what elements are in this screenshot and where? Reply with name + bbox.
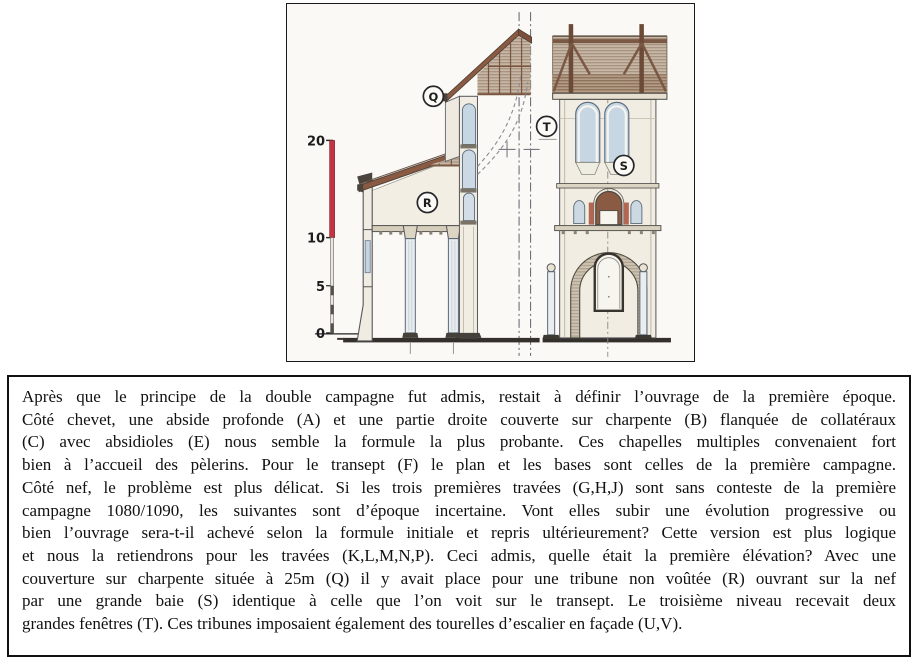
text-line: par une grande baie (S) identique à cell… bbox=[22, 590, 896, 613]
scale-bar-red-segment bbox=[330, 140, 335, 237]
paragraph: Après que le principe de la double campa… bbox=[22, 386, 896, 636]
text-line: Côté chevet, une abside profonde (A) et … bbox=[22, 409, 896, 432]
label-circle-r: R bbox=[417, 193, 437, 213]
label-circle-q: Q bbox=[423, 86, 443, 106]
string-course bbox=[557, 184, 659, 189]
portal-recessed-window bbox=[595, 254, 623, 311]
side-niche-right bbox=[631, 201, 642, 224]
page: 20 10 5 0 bbox=[0, 0, 918, 660]
description-text-box: Après que le principe de la double campa… bbox=[7, 375, 911, 657]
label-t-text: T bbox=[543, 120, 551, 134]
label-circle-t: T bbox=[537, 116, 557, 136]
text-line: bien l’ouvrage sera-t-il achevé selon la… bbox=[22, 522, 896, 545]
scale-label-5: 5 bbox=[316, 280, 325, 295]
label-q-text: Q bbox=[428, 90, 438, 104]
tribune-opening bbox=[462, 150, 475, 189]
text-line: Après que le principe de la double campa… bbox=[22, 386, 896, 409]
scale-label-0: 0 bbox=[316, 327, 325, 342]
text-line: bien à l’accueil des pèlerins. Pour le t… bbox=[22, 454, 896, 477]
roof-post-right bbox=[639, 24, 644, 93]
wall-slit-window bbox=[365, 241, 370, 273]
label-r-text: R bbox=[423, 196, 432, 210]
nave-wall-section bbox=[455, 96, 481, 338]
text-line: Côté nef, le problème est plus délicat. … bbox=[22, 477, 896, 500]
text-line: campagne 1080/1090, les suivantes sont d… bbox=[22, 500, 896, 523]
architecture-drawing: 20 10 5 0 bbox=[287, 4, 694, 361]
scale-label-10: 10 bbox=[307, 232, 325, 247]
label-circle-s: S bbox=[614, 155, 634, 175]
tower-cornice bbox=[553, 93, 667, 99]
text-line: et nous la retiendrons pour les travées … bbox=[22, 545, 896, 568]
clerestory-window bbox=[462, 104, 475, 145]
clerestory-strip bbox=[445, 96, 459, 161]
lower-opening bbox=[463, 193, 474, 221]
figure-frame: 20 10 5 0 bbox=[286, 3, 695, 362]
label-s-text: S bbox=[620, 159, 628, 173]
text-line: (C) avec absidioles (E) nous semble la f… bbox=[22, 431, 896, 454]
text-line: couverture sur charpente située à 25m (Q… bbox=[22, 568, 896, 591]
roof-post-left bbox=[569, 24, 574, 93]
text-line: grandes fenêtres (T). Ces tribunes impos… bbox=[22, 613, 896, 636]
side-niche-left bbox=[574, 201, 585, 224]
scale-label-20: 20 bbox=[307, 134, 325, 149]
